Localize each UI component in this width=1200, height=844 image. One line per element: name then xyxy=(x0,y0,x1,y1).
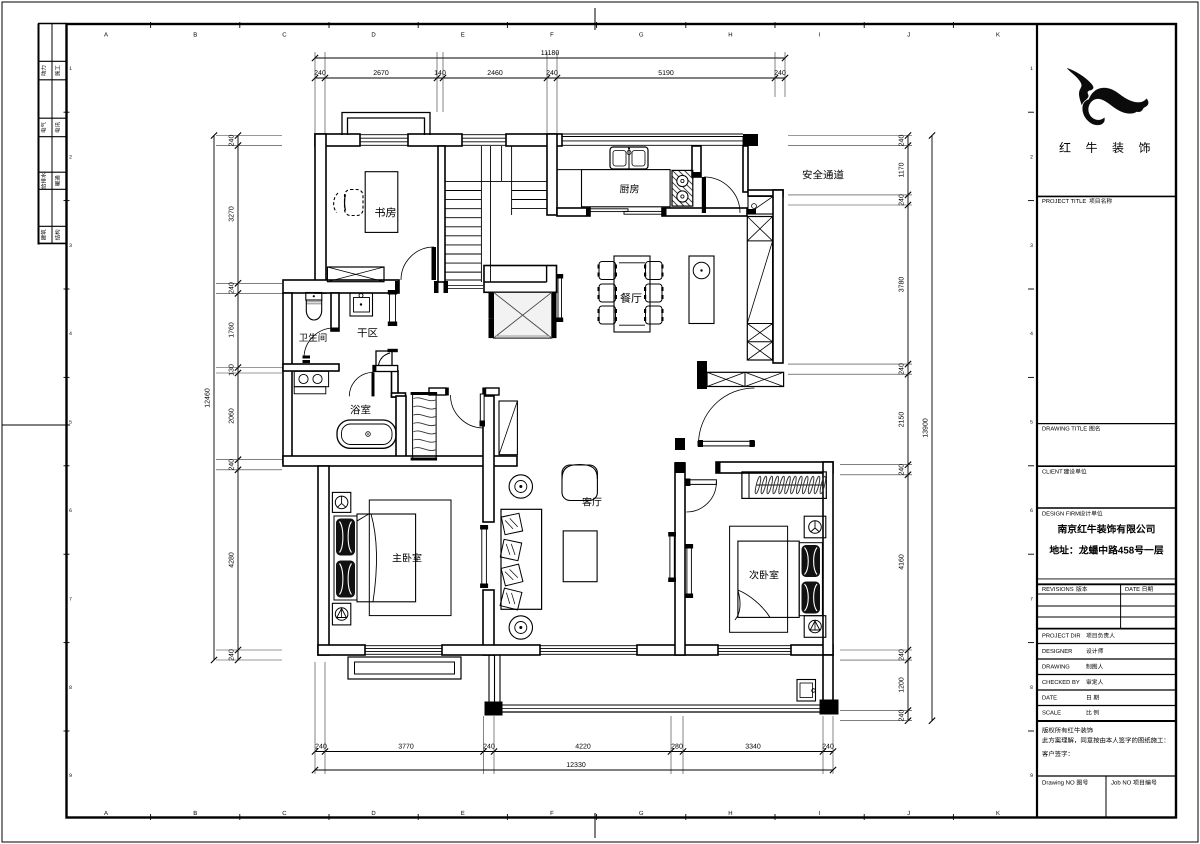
svg-text:4220: 4220 xyxy=(575,744,591,751)
svg-text:H: H xyxy=(728,810,732,817)
svg-text:CHECKED BY: CHECKED BY xyxy=(1042,679,1080,686)
svg-text:J: J xyxy=(907,32,910,39)
svg-text:240: 240 xyxy=(774,70,786,77)
svg-text:A: A xyxy=(104,810,108,817)
svg-text:设计师: 设计师 xyxy=(1086,648,1104,655)
svg-text:7: 7 xyxy=(1030,596,1033,602)
svg-text:8: 8 xyxy=(1030,685,1033,691)
svg-text:3340: 3340 xyxy=(745,744,761,751)
svg-text:南京红牛装饰有限公司: 南京红牛装饰有限公司 xyxy=(1058,524,1156,536)
svg-text:4280: 4280 xyxy=(229,552,236,568)
svg-text:地址：龙蟠中路458号一层: 地址：龙蟠中路458号一层 xyxy=(1049,545,1164,557)
svg-text:此方案理解，同意按由本人签字的图纸施工：: 此方案理解，同意按由本人签字的图纸施工： xyxy=(1042,737,1170,745)
svg-text:240: 240 xyxy=(899,464,906,476)
svg-text:电气: 电气 xyxy=(41,121,48,133)
svg-text:G: G xyxy=(639,32,644,39)
svg-text:1: 1 xyxy=(1030,66,1033,72)
svg-text:F: F xyxy=(550,810,554,817)
svg-text:DRAWING TITLE: DRAWING TITLE xyxy=(1042,426,1087,433)
svg-text:E: E xyxy=(461,32,465,39)
svg-text:240: 240 xyxy=(229,459,236,471)
svg-text:5: 5 xyxy=(1030,420,1033,426)
svg-text:施工: 施工 xyxy=(55,65,62,77)
svg-text:240: 240 xyxy=(483,744,495,751)
svg-text:客厅: 客厅 xyxy=(582,497,602,509)
svg-text:F: F xyxy=(550,32,554,39)
svg-text:Drawing NO 图号: Drawing NO 图号 xyxy=(1042,780,1088,787)
svg-text:240: 240 xyxy=(899,363,906,375)
svg-text:DATE: DATE xyxy=(1042,696,1057,702)
svg-text:制图人: 制图人 xyxy=(1086,664,1104,671)
svg-text:PROJECT TITLE: PROJECT TITLE xyxy=(1042,198,1086,205)
svg-text:SCALE: SCALE xyxy=(1042,710,1061,717)
svg-text:J: J xyxy=(907,810,910,817)
svg-text:结构: 结构 xyxy=(55,229,62,241)
svg-text:5: 5 xyxy=(69,420,72,426)
svg-text:2: 2 xyxy=(1030,154,1033,160)
svg-text:审定人: 审定人 xyxy=(1086,679,1104,686)
svg-text:2060: 2060 xyxy=(229,408,236,424)
svg-text:比 例: 比 例 xyxy=(1086,710,1099,717)
svg-text:C: C xyxy=(282,810,287,817)
svg-text:DESIGN FIRM: DESIGN FIRM xyxy=(1042,511,1080,518)
svg-text:版本: 版本 xyxy=(1076,586,1088,593)
svg-text:图名: 图名 xyxy=(1089,426,1101,433)
svg-text:13900: 13900 xyxy=(923,418,930,438)
svg-text:240: 240 xyxy=(899,710,906,722)
svg-text:12330: 12330 xyxy=(566,762,586,769)
svg-text:8: 8 xyxy=(69,685,72,691)
svg-text:项目负责人: 项目负责人 xyxy=(1086,633,1115,640)
svg-text:3780: 3780 xyxy=(899,277,906,293)
svg-text:240: 240 xyxy=(899,135,906,147)
svg-text:1200: 1200 xyxy=(899,677,906,693)
svg-text:2: 2 xyxy=(69,154,72,160)
svg-text:D: D xyxy=(371,32,376,39)
svg-text:日 期: 日 期 xyxy=(1086,695,1099,702)
svg-text:4160: 4160 xyxy=(899,554,906,570)
svg-text:动力: 动力 xyxy=(41,65,48,76)
svg-text:浴室: 浴室 xyxy=(350,405,371,417)
svg-text:E: E xyxy=(461,810,465,817)
svg-text:240: 240 xyxy=(546,70,558,77)
svg-text:11180: 11180 xyxy=(541,50,560,57)
svg-text:B: B xyxy=(193,810,197,817)
svg-text:卫生间: 卫生间 xyxy=(299,333,328,344)
svg-text:4: 4 xyxy=(1030,331,1033,337)
svg-text:安全通道: 安全通道 xyxy=(802,169,844,181)
svg-text:H: H xyxy=(728,32,732,39)
svg-text:D: D xyxy=(371,810,376,817)
svg-text:厨房: 厨房 xyxy=(620,183,640,195)
svg-text:项目名称: 项目名称 xyxy=(1089,198,1112,205)
svg-text:建设单位: 建设单位 xyxy=(1064,469,1087,476)
svg-text:240: 240 xyxy=(822,744,834,751)
svg-text:建筑: 建筑 xyxy=(41,229,48,241)
svg-text:Job NO 项目编号: Job NO 项目编号 xyxy=(1111,779,1157,787)
svg-text:版权所有红牛装饰: 版权所有红牛装饰 xyxy=(1042,727,1094,735)
svg-text:红牛装饰: 红牛装饰 xyxy=(1059,141,1165,155)
svg-text:电讯: 电讯 xyxy=(55,121,62,133)
svg-text:9: 9 xyxy=(1030,773,1033,779)
svg-text:3: 3 xyxy=(69,243,72,249)
svg-text:DATE 日期: DATE 日期 xyxy=(1125,586,1153,593)
svg-text:240: 240 xyxy=(229,135,236,147)
svg-text:B: B xyxy=(193,32,197,39)
svg-text:DESIGNER: DESIGNER xyxy=(1042,648,1072,655)
svg-text:K: K xyxy=(996,32,1000,39)
svg-text:给排水: 给排水 xyxy=(41,172,48,189)
svg-text:DRAWING: DRAWING xyxy=(1042,664,1070,671)
svg-text:暖通: 暖通 xyxy=(55,175,62,187)
svg-text:7: 7 xyxy=(69,596,72,602)
svg-text:3270: 3270 xyxy=(229,206,236,222)
svg-text:2670: 2670 xyxy=(373,70,389,77)
svg-text:240: 240 xyxy=(314,70,326,77)
svg-text:9: 9 xyxy=(69,773,72,779)
svg-text:次卧室: 次卧室 xyxy=(749,570,779,582)
svg-text:客户签字：: 客户签字： xyxy=(1042,750,1074,758)
svg-text:3: 3 xyxy=(1030,243,1033,249)
svg-text:1: 1 xyxy=(69,66,72,72)
svg-text:6: 6 xyxy=(1030,508,1033,514)
svg-text:2150: 2150 xyxy=(899,412,906,428)
svg-text:240: 240 xyxy=(229,282,236,294)
svg-text:设计单位: 设计单位 xyxy=(1080,511,1103,518)
svg-text:5190: 5190 xyxy=(658,70,674,77)
svg-text:G: G xyxy=(639,810,644,817)
svg-text:240: 240 xyxy=(315,744,327,751)
svg-text:干区: 干区 xyxy=(357,328,378,340)
svg-text:240: 240 xyxy=(899,649,906,661)
svg-text:240: 240 xyxy=(229,649,236,661)
svg-text:书房: 书房 xyxy=(375,207,397,220)
svg-text:C: C xyxy=(282,32,287,39)
svg-text:12460: 12460 xyxy=(205,388,212,408)
svg-text:2460: 2460 xyxy=(487,70,503,77)
svg-text:A: A xyxy=(104,32,108,39)
svg-text:PROJECT DIR: PROJECT DIR xyxy=(1042,633,1081,640)
svg-text:餐厅: 餐厅 xyxy=(620,292,642,305)
svg-text:1760: 1760 xyxy=(229,322,236,338)
svg-text:CLIENT: CLIENT xyxy=(1042,469,1063,476)
svg-text:240: 240 xyxy=(899,194,906,206)
svg-text:4: 4 xyxy=(69,331,72,337)
svg-text:140: 140 xyxy=(434,70,446,77)
svg-text:REVISIONS: REVISIONS xyxy=(1042,586,1074,593)
svg-text:3770: 3770 xyxy=(398,744,414,751)
svg-text:主卧室: 主卧室 xyxy=(392,553,422,565)
svg-text:280: 280 xyxy=(671,744,683,751)
svg-text:130: 130 xyxy=(229,364,236,376)
svg-text:6: 6 xyxy=(69,508,72,514)
svg-text:1170: 1170 xyxy=(899,162,906,177)
svg-text:K: K xyxy=(996,810,1000,817)
